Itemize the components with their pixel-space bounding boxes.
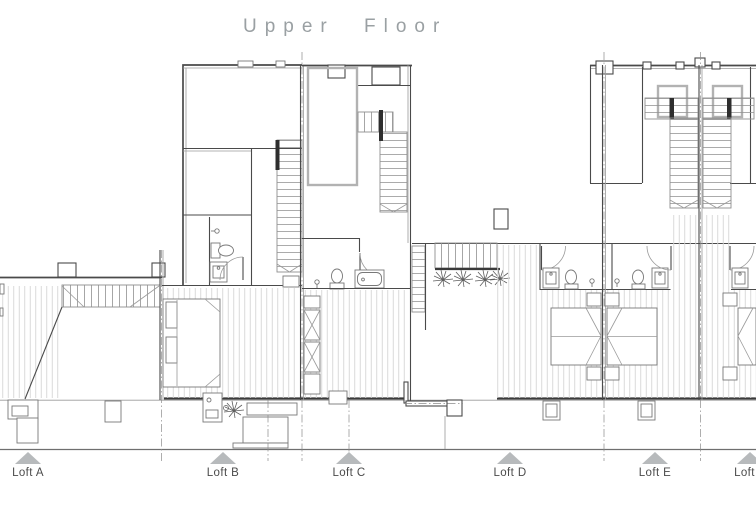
plant-icon: [224, 401, 244, 418]
hook-icon: [215, 229, 219, 233]
loft-f-plan: [703, 86, 756, 398]
nightstand: [587, 293, 601, 306]
nightstand: [723, 367, 737, 380]
stair-stringer: [276, 140, 280, 170]
toilet-icon: [632, 270, 645, 289]
door-arc: [730, 246, 754, 270]
column: [695, 58, 705, 67]
loft-a-plan: [0, 263, 165, 443]
triangle-up-icon: [642, 452, 668, 464]
triangle-up-icon: [336, 452, 362, 464]
loft-label: Loft E: [639, 467, 671, 479]
loft-d-marker: Loft D: [478, 452, 542, 479]
hook-icon: [615, 279, 619, 283]
hatch-floor: [497, 245, 540, 398]
staircase: [277, 140, 302, 272]
nightstand: [605, 367, 619, 380]
wall-vent: [276, 61, 285, 67]
bench: [247, 403, 297, 415]
loft-f-marker: Loft F: [718, 452, 756, 479]
nightstand: [587, 367, 601, 380]
loft-b-plan: [162, 61, 302, 461]
loft-c-marker: Loft C: [317, 452, 381, 479]
nightstand: [723, 293, 737, 306]
stair-stringer: [727, 98, 732, 119]
column: [58, 263, 76, 277]
skylight: [494, 209, 508, 229]
stair-stringer: [379, 110, 383, 141]
closet: [372, 67, 400, 85]
staircase: [435, 243, 497, 268]
void-opening: [308, 68, 357, 185]
triangle-up-icon: [210, 452, 236, 464]
floor-plan-drawing: [0, 0, 756, 528]
nightstand: [605, 293, 619, 306]
triangle-up-icon: [737, 452, 756, 464]
wall-nib: [643, 62, 651, 69]
wall-nib: [676, 62, 684, 69]
wardrobe: [304, 296, 320, 394]
plant-icon: [453, 270, 473, 287]
hatch-floor: [2, 286, 60, 398]
hatch-hall: [703, 215, 730, 290]
column: [596, 61, 613, 74]
column: [447, 400, 462, 416]
hatch-hall: [671, 215, 698, 290]
loft-a-marker: Loft A: [0, 452, 60, 479]
hook-icon: [590, 279, 594, 283]
loft-label: Loft C: [332, 467, 365, 479]
party-wall-ef: [699, 52, 702, 461]
party-wall-de: [603, 52, 606, 461]
toilet-icon: [219, 245, 234, 256]
bed: [163, 299, 220, 387]
utility-box: [105, 401, 121, 422]
loft-label: Loft B: [207, 467, 239, 479]
triangle-up-icon: [15, 452, 41, 464]
wall-stub: [0, 284, 4, 294]
sink-icon: [543, 268, 559, 288]
hook-icon: [315, 280, 319, 284]
stair-stringer: [670, 98, 675, 119]
deck-step: [329, 391, 347, 404]
loft-b-marker: Loft B: [191, 452, 255, 479]
door-arc: [542, 246, 566, 270]
plant-icon: [433, 270, 453, 287]
party-wall-bc: [301, 52, 304, 461]
utility-box: [17, 418, 38, 443]
utility-box: [12, 406, 28, 416]
toilet-icon: [330, 269, 344, 289]
toilet-icon: [565, 270, 578, 289]
wall-stub: [0, 308, 3, 316]
bathtub-icon: [355, 270, 384, 288]
floor-plan-canvas: Upper Floor: [0, 0, 756, 528]
staircase: [412, 246, 425, 312]
sink-icon: [732, 268, 748, 288]
loft-e-marker: Loft E: [623, 452, 687, 479]
shelf: [283, 276, 299, 287]
staircase: [703, 118, 731, 208]
staircase: [358, 110, 407, 212]
wall-vent: [238, 61, 253, 67]
staircase: [670, 118, 698, 208]
wall-nib: [712, 62, 720, 69]
loft-e-plan: [605, 86, 698, 420]
terrace-screen-wall: [404, 382, 463, 449]
loft-label: Loft A: [12, 467, 44, 479]
loft-label: Loft F: [734, 467, 756, 479]
sink-icon: [652, 268, 668, 288]
triangle-up-icon: [497, 452, 523, 464]
loft-label: Loft D: [493, 467, 526, 479]
plant-icon: [475, 270, 495, 287]
door-arc: [647, 246, 671, 270]
